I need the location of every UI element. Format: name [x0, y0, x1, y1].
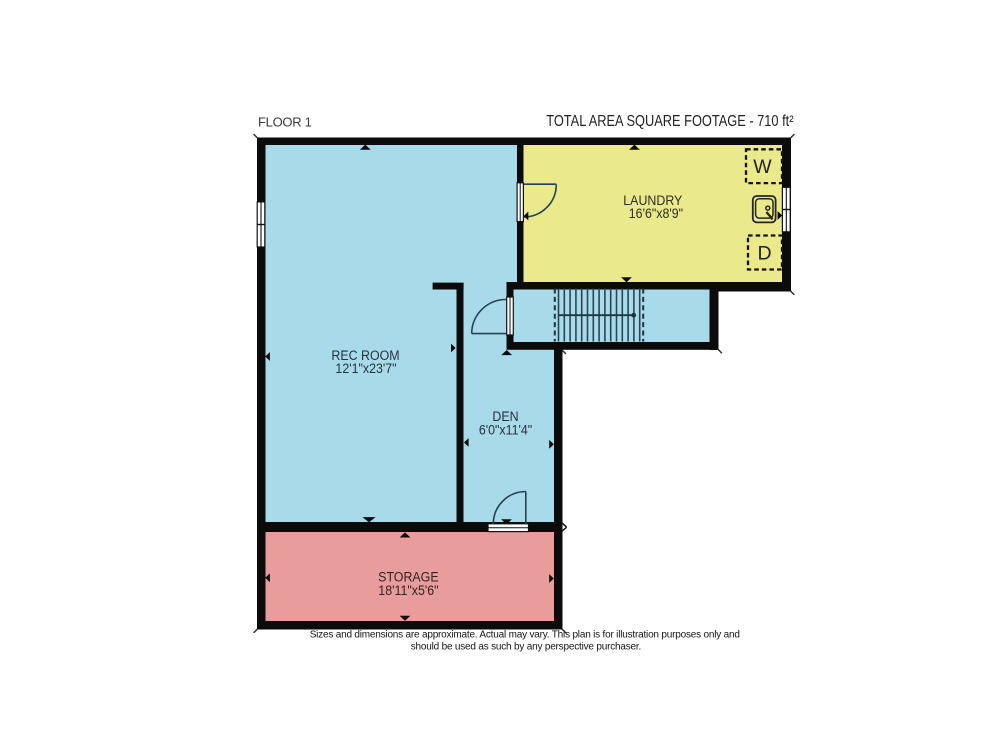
svg-text:D: D — [757, 243, 771, 265]
svg-text:12'1"x23'7": 12'1"x23'7" — [335, 361, 396, 377]
svg-text:FLOOR 1: FLOOR 1 — [258, 115, 312, 130]
svg-text:should be used as such by any: should be used as such by any perspectiv… — [411, 641, 641, 652]
svg-text:TOTAL AREA SQUARE FOOTAGE - 71: TOTAL AREA SQUARE FOOTAGE - 710 ft² — [546, 113, 793, 130]
svg-text:18'11"x5'6": 18'11"x5'6" — [378, 582, 439, 598]
svg-text:6'0"x11'4": 6'0"x11'4" — [479, 422, 533, 438]
svg-text:Sizes and dimensions are appro: Sizes and dimensions are approximate. Ac… — [310, 629, 740, 640]
svg-text:W: W — [753, 156, 772, 178]
svg-text:16'6"x8'9": 16'6"x8'9" — [629, 205, 684, 221]
